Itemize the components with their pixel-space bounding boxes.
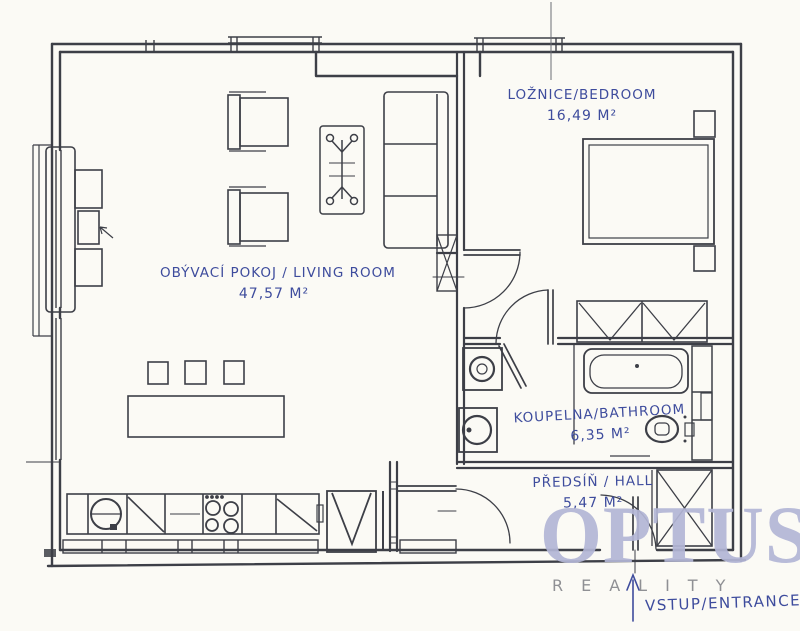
room-area: 47,57 M² [160,284,388,304]
room-name: OBÝVACÍ POKOJ / LIVING ROOM [160,264,388,284]
bathtub [584,349,688,393]
room-label-bedroom: LOŽNICE/BEDROOM 16,49 M² [498,86,666,126]
service-shaft [692,346,712,460]
dining-table [128,396,284,437]
coffee-table [320,126,364,214]
stove [206,496,238,533]
nightstand [694,246,715,271]
watermark-brand: OPTUS [540,494,792,576]
room-area: 16,49 M² [498,106,666,126]
wardrobe [577,301,707,342]
nightstand [694,111,715,137]
armchair [228,187,288,246]
double-bed [583,139,714,244]
watermark-subtitle: REALITY [552,576,743,595]
washing-machine [463,348,502,390]
room-label-living-room: OBÝVACÍ POKOJ / LIVING ROOM 47,57 M² [160,264,388,304]
stool [185,361,206,384]
armchair [228,92,288,151]
room-name: LOŽNICE/BEDROOM [498,86,666,106]
stool [148,362,168,384]
kitchen-sink [91,499,121,530]
sofa [384,92,448,248]
refrigerator [327,491,383,552]
floor-plan-page: OBÝVACÍ POKOJ / LIVING ROOM 47,57 M² LOŽ… [0,0,800,631]
stool [224,361,244,384]
